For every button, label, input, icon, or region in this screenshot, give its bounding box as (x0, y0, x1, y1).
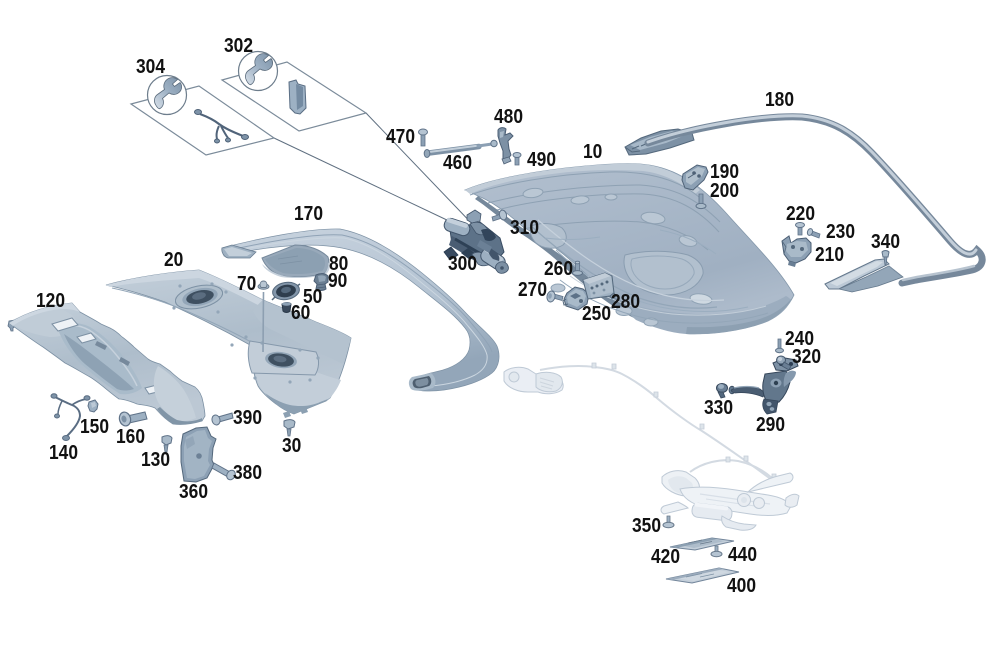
svg-text:170: 170 (294, 202, 323, 225)
svg-text:390: 390 (233, 406, 262, 429)
svg-text:420: 420 (651, 545, 680, 568)
svg-text:220: 220 (786, 202, 815, 225)
svg-text:90: 90 (328, 269, 347, 292)
svg-text:140: 140 (49, 441, 78, 464)
svg-text:480: 480 (494, 105, 523, 128)
svg-text:270: 270 (518, 278, 547, 301)
svg-text:320: 320 (792, 345, 821, 368)
svg-text:290: 290 (756, 413, 785, 436)
svg-text:230: 230 (826, 220, 855, 243)
svg-text:330: 330 (704, 396, 733, 419)
svg-text:180: 180 (765, 88, 794, 111)
svg-text:300: 300 (448, 252, 477, 275)
svg-text:60: 60 (291, 301, 310, 324)
svg-text:340: 340 (871, 230, 900, 253)
svg-text:200: 200 (710, 179, 739, 202)
svg-text:120: 120 (36, 289, 65, 312)
svg-text:440: 440 (728, 543, 757, 566)
svg-text:490: 490 (527, 148, 556, 171)
svg-text:130: 130 (141, 448, 170, 471)
svg-text:150: 150 (80, 415, 109, 438)
svg-text:460: 460 (443, 151, 472, 174)
svg-text:260: 260 (544, 257, 573, 280)
svg-text:400: 400 (727, 574, 756, 597)
svg-text:250: 250 (582, 302, 611, 325)
svg-text:210: 210 (815, 243, 844, 266)
svg-text:470: 470 (386, 125, 415, 148)
svg-text:30: 30 (282, 434, 301, 457)
svg-text:350: 350 (632, 514, 661, 537)
svg-text:304: 304 (136, 55, 165, 78)
svg-text:360: 360 (179, 480, 208, 503)
svg-text:302: 302 (224, 34, 253, 57)
svg-text:310: 310 (510, 216, 539, 239)
svg-text:20: 20 (164, 248, 183, 271)
svg-text:160: 160 (116, 425, 145, 448)
svg-text:70: 70 (237, 272, 256, 295)
svg-text:380: 380 (233, 461, 262, 484)
svg-text:10: 10 (583, 140, 602, 163)
svg-text:280: 280 (611, 290, 640, 313)
